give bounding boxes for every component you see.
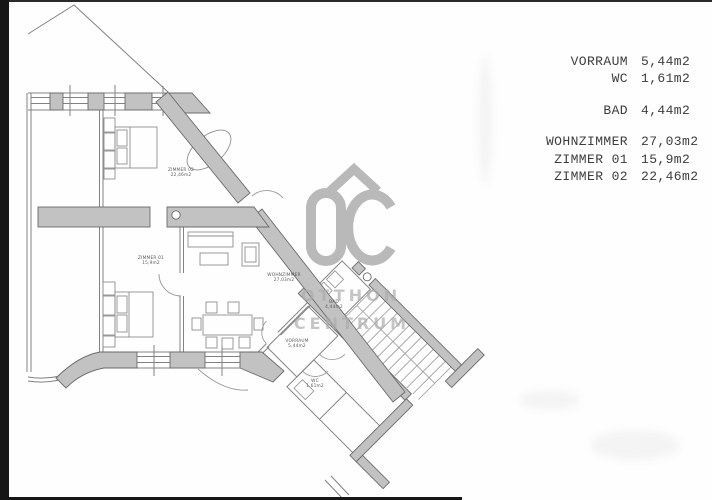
scan-edge-top <box>0 0 712 2</box>
legend-room-name: WC <box>500 70 628 87</box>
middle-wall <box>38 207 150 227</box>
scan-smudge <box>478 55 492 185</box>
legend-room-area: 27,03m2 <box>641 133 698 150</box>
wall-pier <box>170 352 205 368</box>
legend-group: VORRAUM5,44m2WC1,61m2 <box>500 53 705 88</box>
legend-room-name: BAD <box>500 102 628 119</box>
room-label-vorraum: 5,44m2 <box>288 343 306 349</box>
legend-room-name: WOHNZIMMER <box>500 133 628 150</box>
legend-room-name: ZIMMER 02 <box>500 168 628 185</box>
legend-row: WOHNZIMMER27,03m2 <box>500 133 705 150</box>
wall-pier <box>50 93 63 110</box>
legend-room-area: 15,9m2 <box>641 151 690 168</box>
scan-smudge <box>590 430 680 460</box>
scan-smudge <box>520 390 580 410</box>
scan-edge-left <box>0 0 9 498</box>
room-label-wohnzimmer: 27,03m2 <box>274 277 295 283</box>
watermark-line2: CENTRUM <box>294 314 410 333</box>
legend-room-area: 22,46m2 <box>641 168 698 185</box>
legend-row: WC1,61m2 <box>500 70 705 87</box>
room-label-zimmer-02: 22,46m2 <box>171 172 192 178</box>
room-legend: VORRAUM5,44m2WC1,61m2BAD4,44m2WOHNZIMMER… <box>500 53 705 199</box>
legend-row: VORRAUM5,44m2 <box>500 53 705 70</box>
legend-row: BAD4,44m2 <box>500 102 705 119</box>
legend-group: BAD4,44m2 <box>500 102 705 119</box>
middle-wall-tip <box>167 207 269 227</box>
watermark-line1: OTTHON <box>301 286 401 305</box>
legend-room-name: ZIMMER 01 <box>500 151 628 168</box>
wall-pier <box>125 93 152 110</box>
door-pivot-dot <box>172 211 180 219</box>
legend-room-area: 4,44m2 <box>641 102 690 119</box>
legend-room-area: 5,44m2 <box>641 53 690 70</box>
room-label-wc: 1,61m2 <box>306 383 324 389</box>
legend-row: ZIMMER 0115,9m2 <box>500 151 705 168</box>
legend-row: ZIMMER 0222,46m2 <box>500 168 705 185</box>
legend-room-name: VORRAUM <box>500 53 628 70</box>
wall-pier <box>88 93 104 110</box>
legend-group: WOHNZIMMER27,03m2ZIMMER 0115,9m2ZIMMER 0… <box>500 133 705 185</box>
legend-room-area: 1,61m2 <box>641 70 690 87</box>
room-label-zimmer-01: 15,9m2 <box>142 260 160 266</box>
